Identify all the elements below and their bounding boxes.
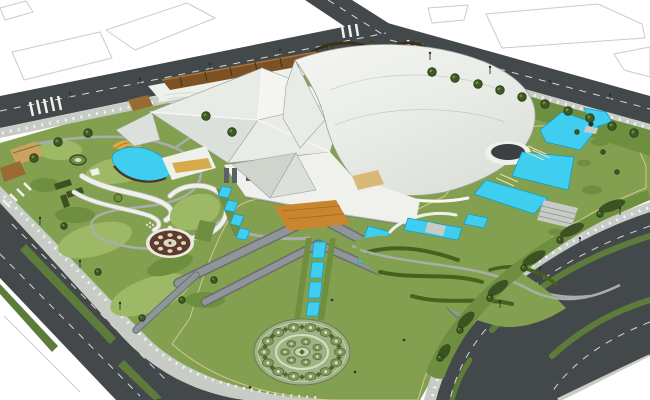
screenshot-canvas: Aerial 3D architectural rendering of a c… <box>0 0 650 400</box>
mandala-parterre <box>254 319 350 385</box>
site-render <box>0 0 650 400</box>
site-render-figure: Aerial 3D architectural rendering of a c… <box>0 0 650 400</box>
